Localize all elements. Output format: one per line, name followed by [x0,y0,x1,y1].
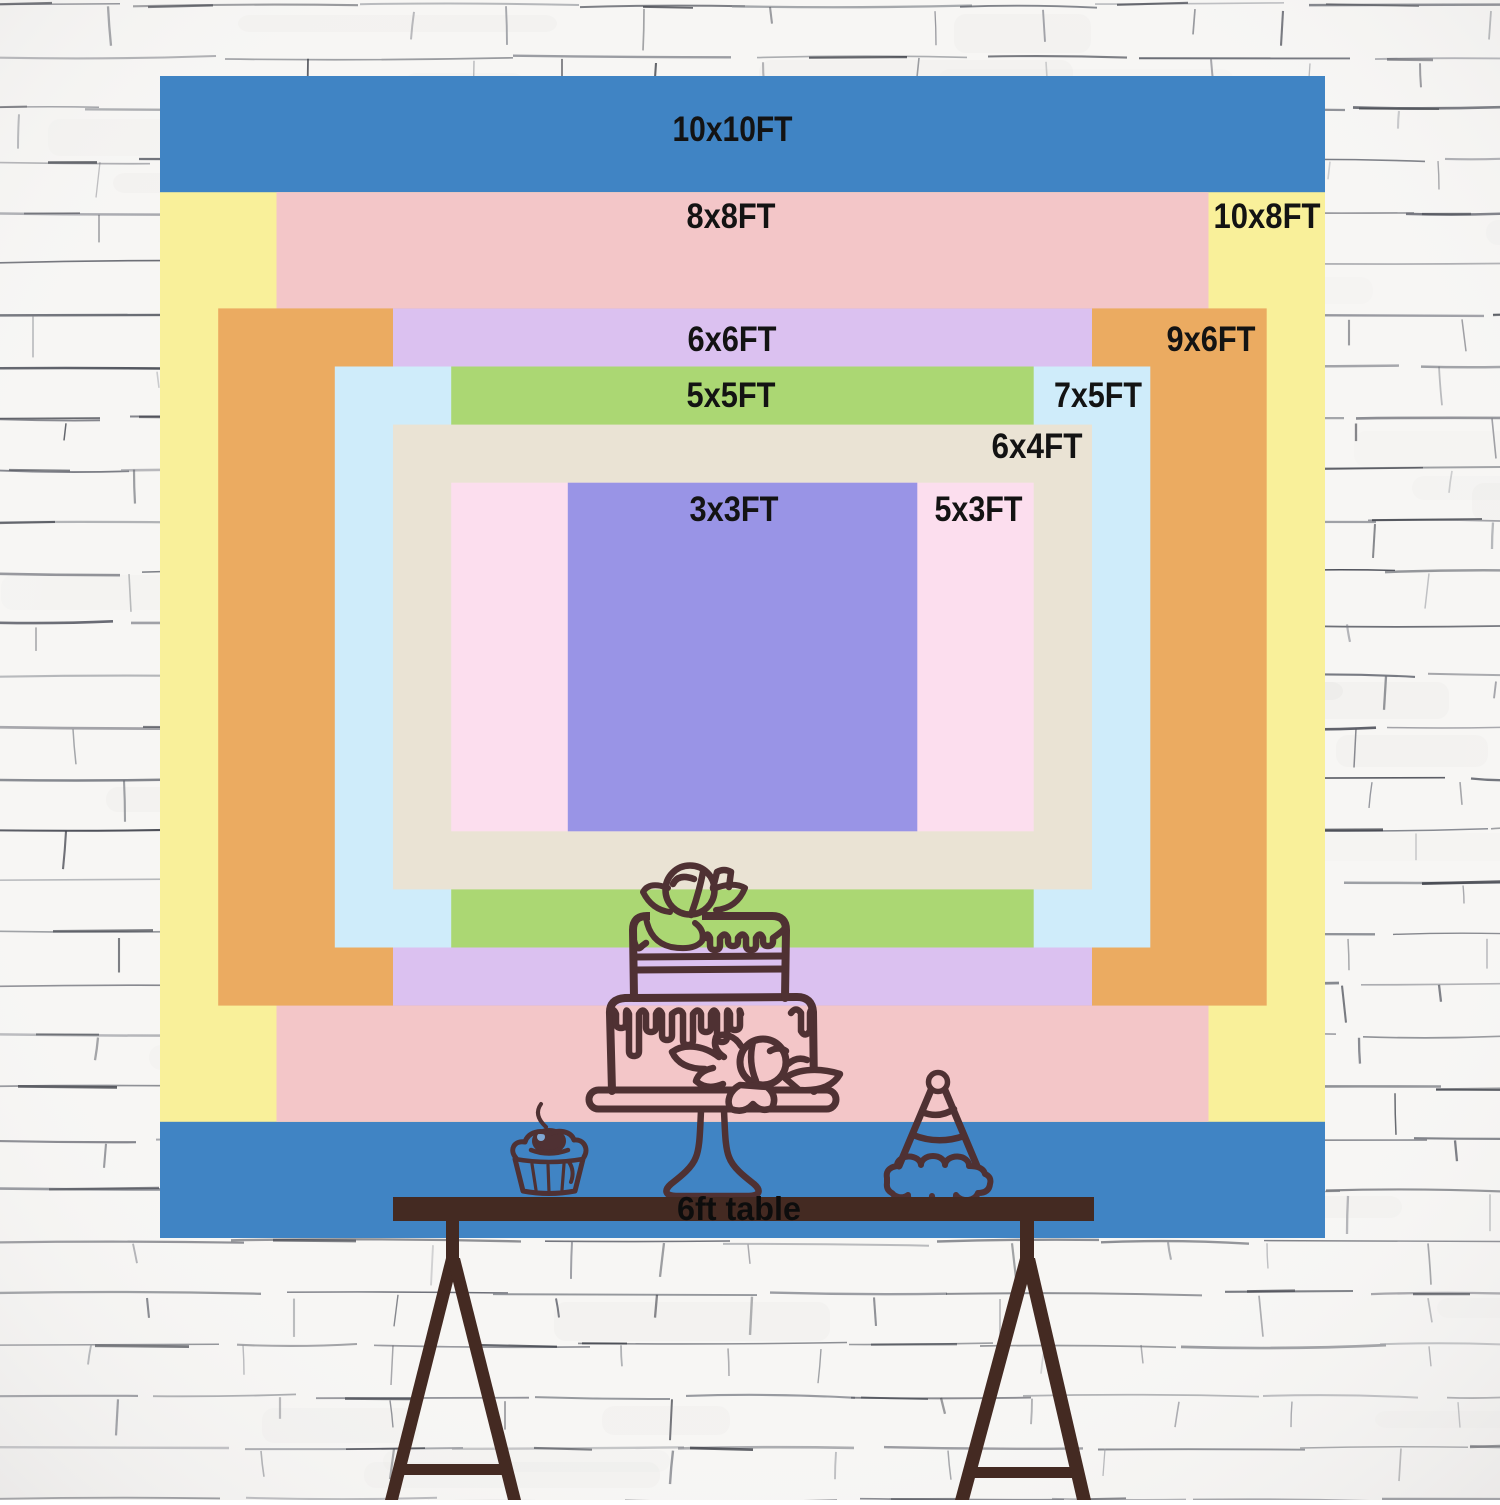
svg-text:6ft table: 6ft table [677,1191,801,1228]
svg-text:10x10FT: 10x10FT [673,109,793,149]
svg-text:5x5FT: 5x5FT [687,375,776,415]
svg-text:7x5FT: 7x5FT [1054,375,1142,415]
svg-text:6x4FT: 6x4FT [992,426,1083,466]
svg-text:3x3FT: 3x3FT [690,489,779,529]
svg-text:10x8FT: 10x8FT [1214,196,1321,236]
svg-text:8x8FT: 8x8FT [687,196,776,236]
svg-text:9x6FT: 9x6FT [1167,319,1256,359]
svg-text:6x6FT: 6x6FT [688,319,777,359]
svg-text:5x3FT: 5x3FT [935,489,1023,529]
